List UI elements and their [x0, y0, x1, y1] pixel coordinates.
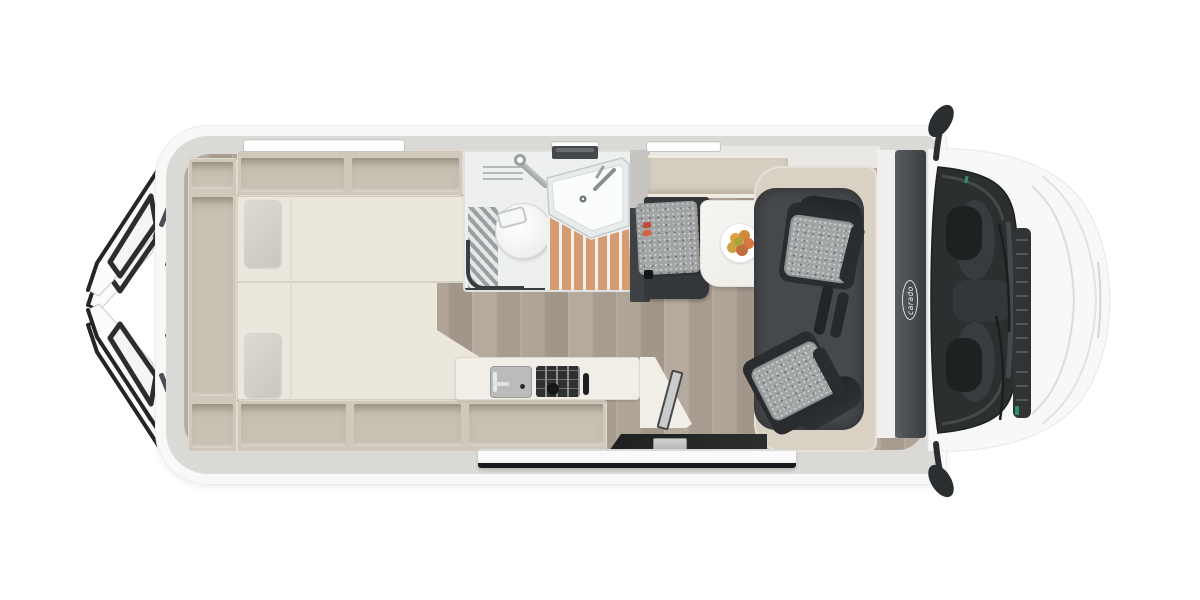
bathroom-door-track: [465, 288, 545, 291]
cab-bulkhead-strip: [877, 150, 895, 438]
interior: carado: [176, 146, 932, 458]
stove-handle: [583, 373, 589, 395]
headrest-reflection: [946, 206, 982, 260]
mattress-seam: [290, 196, 292, 400]
partition-hinge: [514, 154, 526, 166]
storage-compartment: [241, 404, 346, 446]
storage-compartment: [192, 197, 233, 396]
glass-reflection: [953, 280, 1011, 322]
kitchen-faucet-spout: [493, 382, 509, 386]
sink-drain: [520, 384, 525, 389]
storage-compartment: [352, 158, 459, 192]
towel-rail: [483, 172, 523, 174]
stove-burner: [547, 383, 559, 395]
sink-drain-center: [582, 198, 584, 200]
bench-seat-cushion: [635, 200, 701, 275]
roof-window: [243, 139, 405, 152]
storage-compartment: [354, 404, 461, 446]
headrest-reflection: [946, 338, 982, 392]
fruit: [734, 237, 743, 246]
towel-rail: [483, 166, 523, 168]
pillow: [244, 200, 280, 267]
carado-badge-text: carado: [906, 286, 915, 315]
pillow: [244, 333, 280, 397]
bathroom-roof-vent: [552, 146, 598, 159]
stove-grate: [536, 366, 580, 397]
roof-window: [646, 141, 721, 152]
storage-compartment: [192, 404, 233, 448]
roof-vent-inner: [556, 148, 594, 152]
washer-nozzle: [1015, 406, 1019, 415]
sliding-door-open: [478, 449, 796, 468]
cab-front: [918, 90, 1118, 510]
campervan-floorplan: carado: [0, 0, 1200, 600]
bench-hinge: [644, 270, 653, 279]
mattress-seam: [237, 281, 463, 283]
bathroom: [463, 150, 634, 292]
towel-rail: [483, 178, 523, 180]
storage-compartment: [241, 158, 344, 192]
storage-compartment: [469, 404, 603, 446]
corner-sink: [540, 155, 634, 251]
carado-badge: carado: [902, 280, 918, 320]
storage-compartment: [192, 162, 233, 189]
